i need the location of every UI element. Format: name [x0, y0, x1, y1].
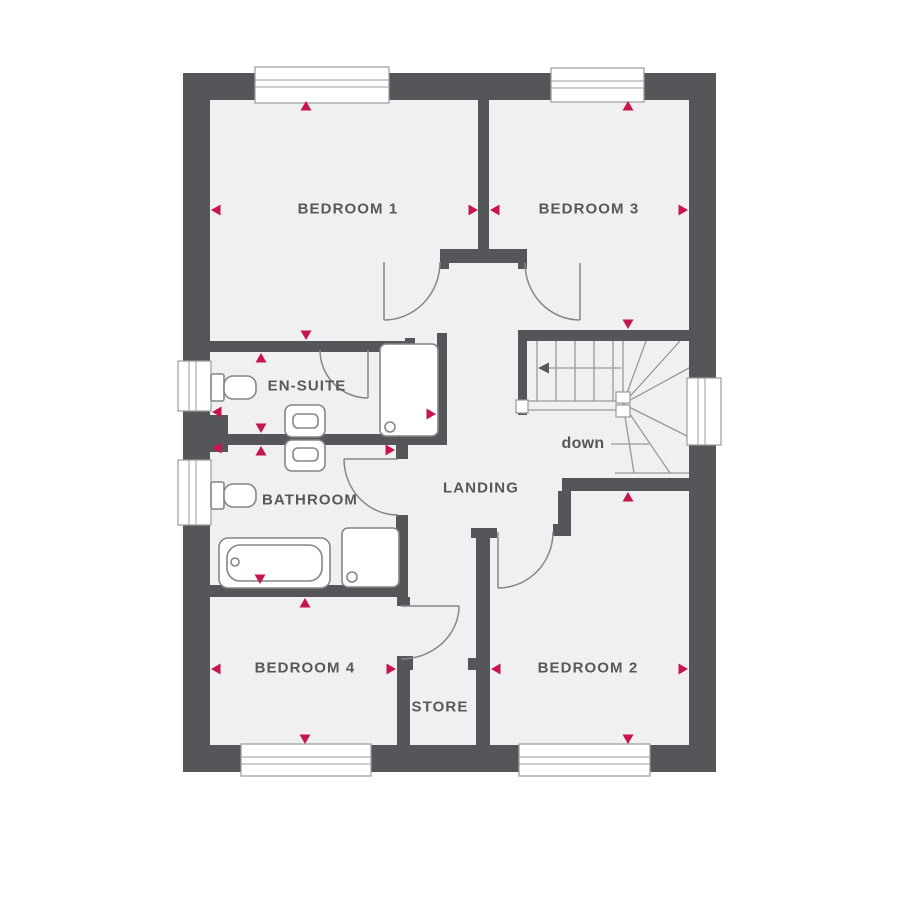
room-label-bedroom-4: BEDROOM 4 — [255, 660, 356, 677]
stairs-down-label: down — [562, 435, 605, 453]
room-label-en-suite: EN-SUITE — [268, 378, 347, 395]
window-stairs — [687, 378, 721, 445]
room-label-bedroom-1: BEDROOM 1 — [298, 201, 399, 218]
window-bedroom4 — [241, 744, 371, 776]
ensuite-toilet — [211, 374, 256, 401]
floorplan-drawing — [0, 0, 900, 900]
ensuite-washbasin — [285, 405, 325, 437]
ensuite-shower — [380, 344, 438, 436]
bathroom-washbasin — [285, 440, 325, 471]
room-label-bedroom-2: BEDROOM 2 — [538, 660, 639, 677]
bathtub — [219, 538, 330, 588]
window-bathroom — [178, 460, 211, 525]
room-label-bathroom: BATHROOM — [262, 492, 358, 509]
room-label-landing: LANDING — [443, 480, 519, 497]
floorplan: BEDROOM 1 BEDROOM 3 EN-SUITE BATHROOM LA… — [0, 0, 900, 900]
room-label-store: STORE — [412, 699, 469, 716]
bathroom-toilet — [211, 482, 256, 509]
window-bedroom2 — [519, 744, 650, 776]
window-bedroom1 — [255, 67, 389, 103]
bathroom-shower — [342, 528, 399, 587]
window-ensuite — [178, 361, 211, 411]
room-label-bedroom-3: BEDROOM 3 — [539, 201, 640, 218]
window-bedroom3 — [551, 68, 644, 102]
